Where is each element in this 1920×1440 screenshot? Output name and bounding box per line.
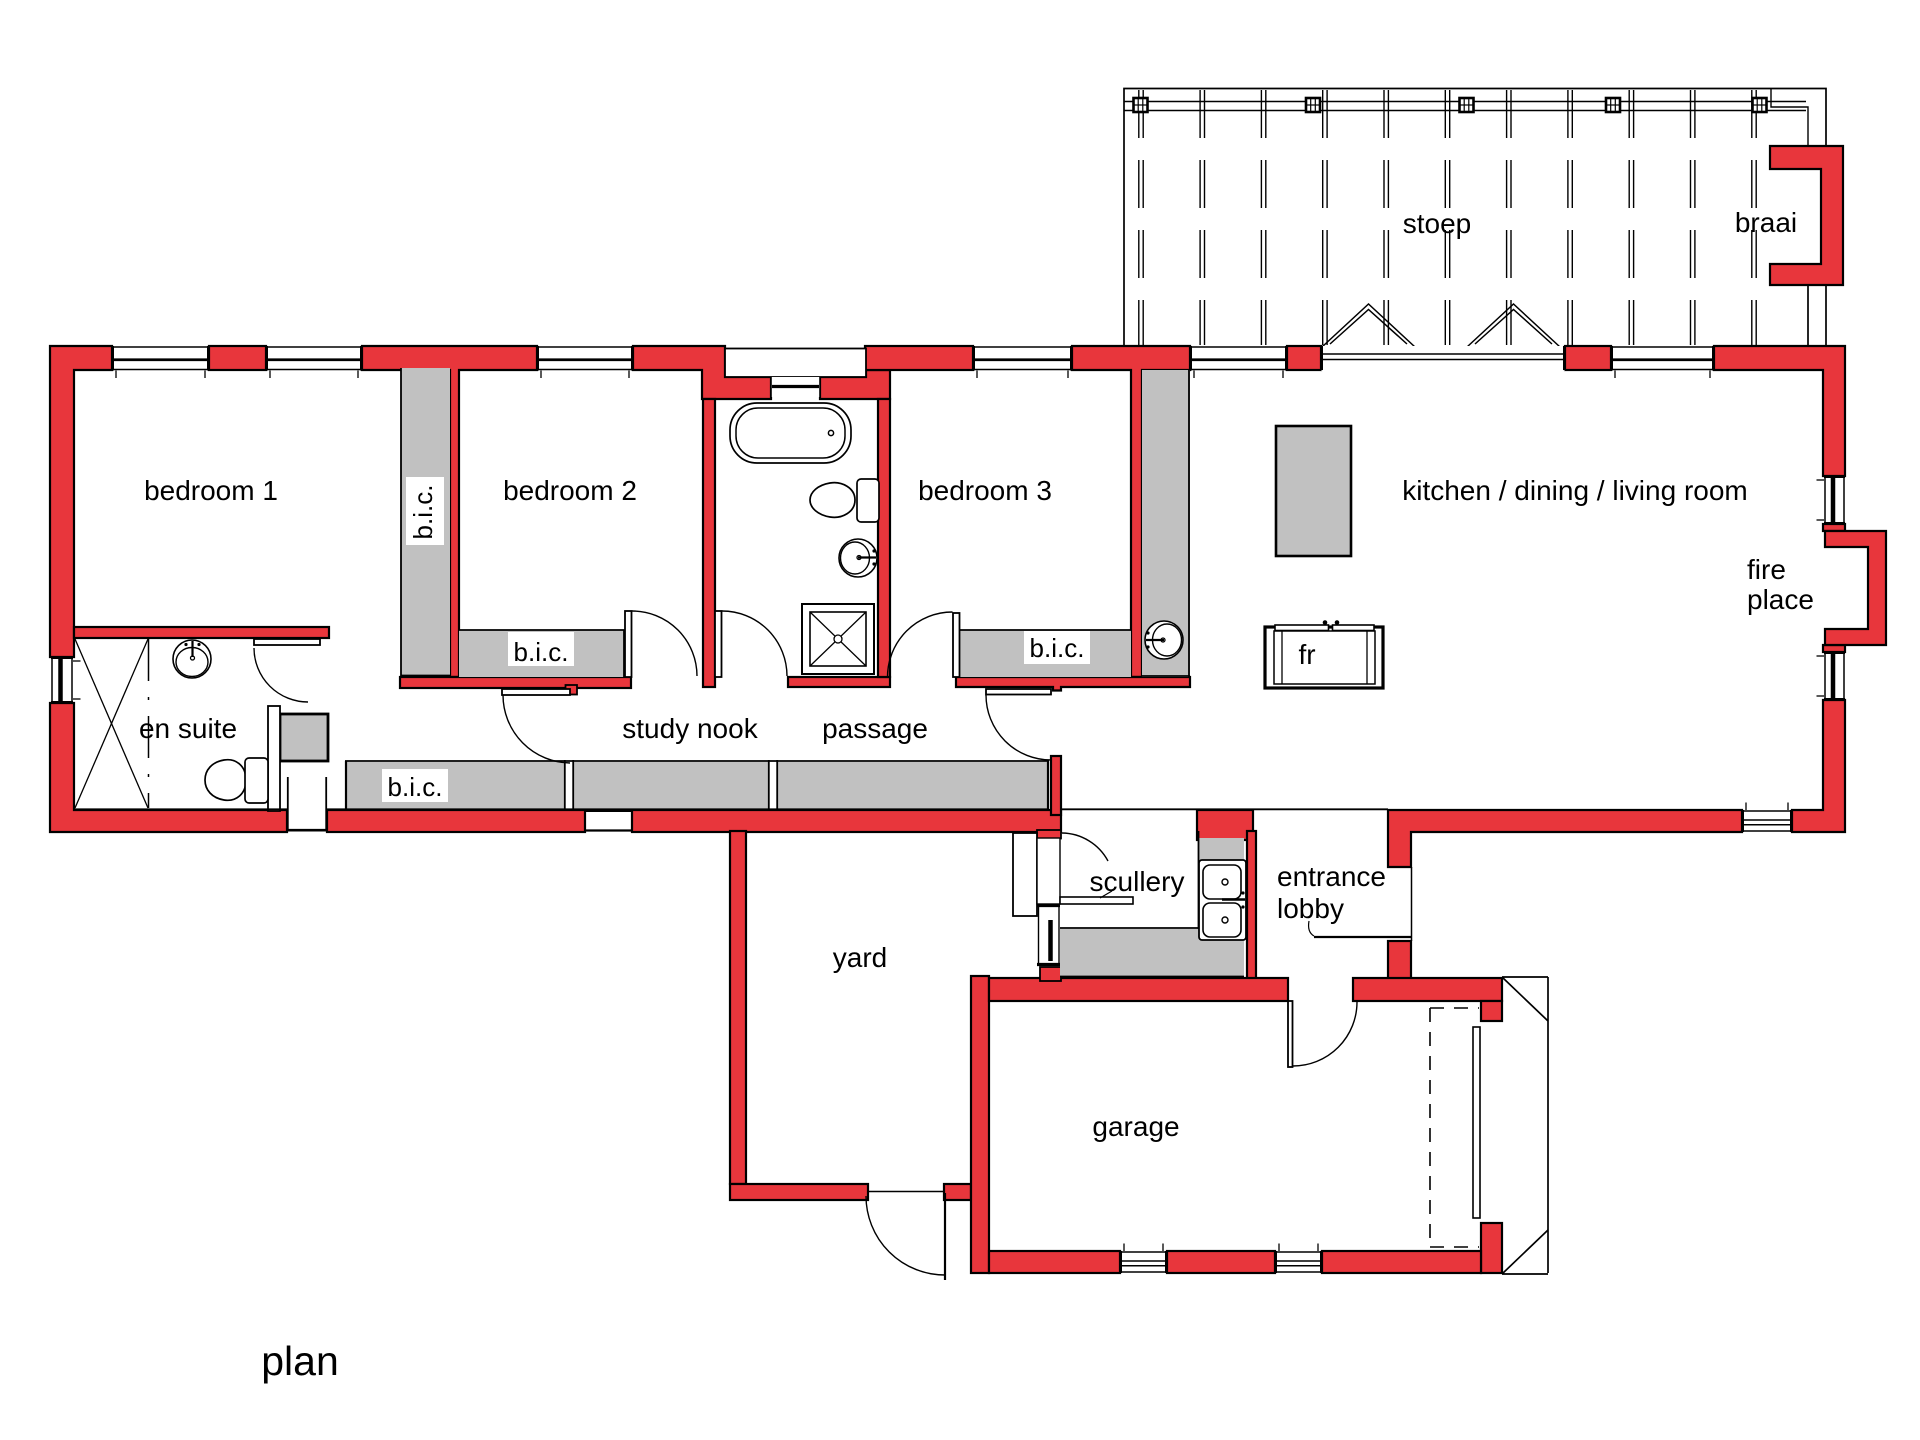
svg-text:b.i.c.: b.i.c. — [388, 772, 443, 802]
svg-text:lobby: lobby — [1277, 893, 1344, 924]
svg-text:entrance: entrance — [1277, 861, 1386, 892]
svg-text:bedroom 2: bedroom 2 — [503, 475, 637, 506]
svg-text:yard: yard — [833, 942, 887, 973]
svg-text:stoep: stoep — [1403, 208, 1472, 239]
svg-text:en suite: en suite — [139, 713, 237, 744]
svg-text:kitchen / dining / living room: kitchen / dining / living room — [1402, 475, 1748, 506]
svg-text:garage: garage — [1092, 1111, 1179, 1142]
svg-text:passage: passage — [822, 713, 928, 744]
svg-text:b.i.c.: b.i.c. — [408, 485, 438, 540]
svg-text:b.i.c.: b.i.c. — [514, 637, 569, 667]
svg-text:bedroom 1: bedroom 1 — [144, 475, 278, 506]
svg-text:scullery: scullery — [1090, 866, 1185, 897]
svg-text:braai: braai — [1735, 207, 1797, 238]
svg-text:bedroom 3: bedroom 3 — [918, 475, 1052, 506]
svg-text:place: place — [1747, 584, 1814, 615]
svg-text:fire: fire — [1747, 554, 1786, 585]
svg-text:fr: fr — [1298, 639, 1315, 670]
svg-text:b.i.c.: b.i.c. — [1030, 633, 1085, 663]
svg-text:study nook: study nook — [622, 713, 758, 744]
svg-text:plan: plan — [261, 1338, 339, 1384]
